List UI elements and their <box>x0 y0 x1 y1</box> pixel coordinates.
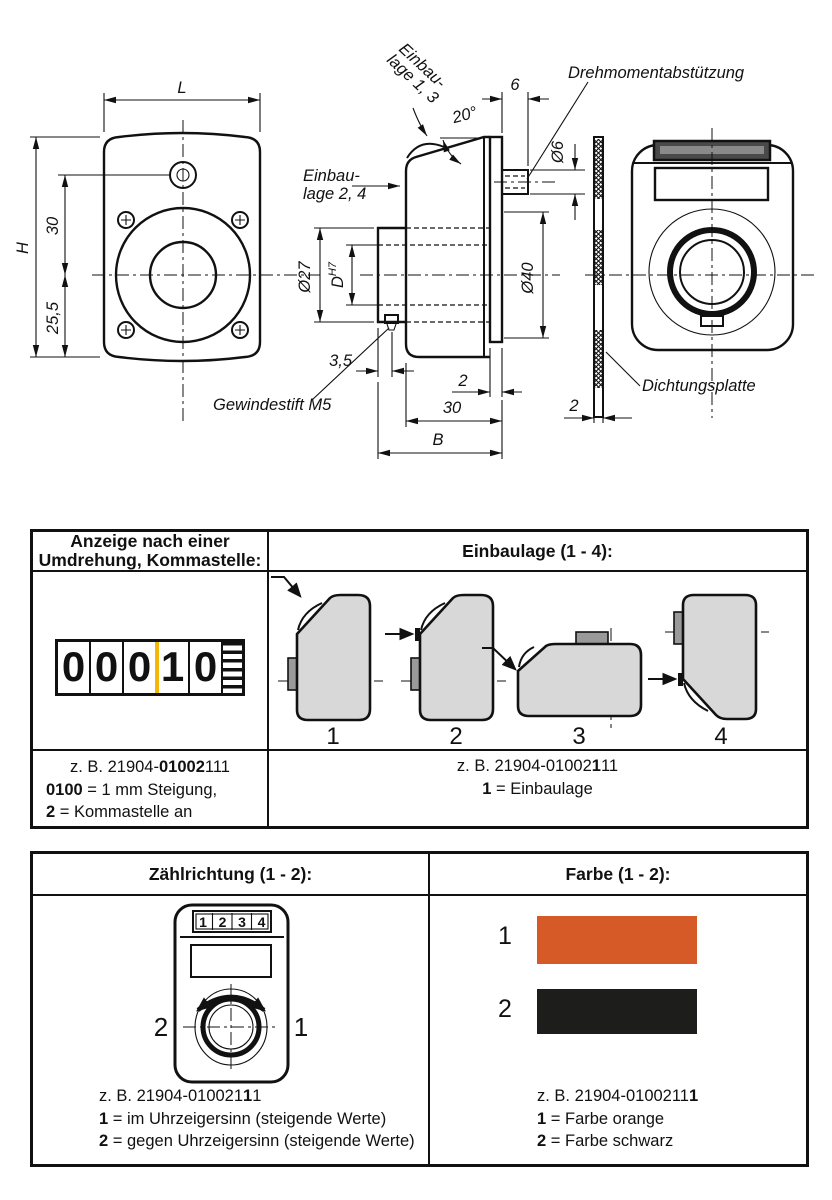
caption-line: 2 = Farbe schwarz <box>537 1130 698 1153</box>
counter-cell: 0 0 0 1 0 <box>33 572 269 751</box>
dim-30-depth: 30 <box>443 399 462 417</box>
einbaulage-number-2: 2 <box>449 723 462 748</box>
dim-6: 6 <box>510 76 520 94</box>
dim-30: 30 <box>44 216 62 235</box>
color-swatch-schwarz <box>537 989 697 1034</box>
technical-drawing: L H 30 25,5 Einbau- lage 1, 3 Einbau- <box>0 0 832 480</box>
dim-dia27: Ø27 <box>296 261 314 294</box>
counter-display: 0 0 0 1 0 <box>55 639 245 696</box>
caption-line: 1 = Farbe orange <box>537 1108 698 1131</box>
torque-support-label: Drehmomentabstützung <box>568 64 745 82</box>
dim-25-5: 25,5 <box>44 301 62 335</box>
counter-digit: 0 <box>190 642 223 693</box>
color-swatch-orange <box>537 916 697 964</box>
einbaulage-caption: z. B. 21904-01002111 1 = Einbaulage <box>269 751 806 826</box>
counter-digit: 0 <box>91 642 124 693</box>
direction-device: 1 2 3 4 2 1 <box>33 896 429 1084</box>
device-digit: 1 <box>199 914 207 930</box>
table-anzeige-einbaulage: Anzeige nach einer Umdrehung, Kommastell… <box>30 529 809 829</box>
table-zaehlrichtung-farbe: Zählrichtung (1 - 2): Farbe (1 - 2): 1 2… <box>30 851 809 1167</box>
header-einbaulage: Einbaulage (1 - 4): <box>269 532 806 572</box>
comma-position-marker <box>155 642 159 693</box>
catalog-page: { "drawing": { "front": { "dim_width": "… <box>0 0 832 1200</box>
side-view: Einbau- lage 1, 3 Einbau- lage 2, 4 20° … <box>213 40 745 459</box>
dim-3-5: 3,5 <box>329 352 353 370</box>
header-anzeige-line1: Anzeige nach einer <box>39 532 262 551</box>
header-farbe: Farbe (1 - 2): <box>430 854 806 896</box>
einbaulage-number-3: 3 <box>572 723 585 748</box>
counter-digit: 0 <box>58 642 91 693</box>
dim-B: B <box>432 431 443 449</box>
dim-2-seal: 2 <box>568 397 578 415</box>
counter-digit: 0 <box>124 642 157 693</box>
direction-label-cw: 1 <box>294 1012 308 1042</box>
farbe-cell: 1 2 z. B. 21904-01002111 1 = Farbe orang… <box>430 896 806 1164</box>
counter-wheel-stripes <box>223 642 242 693</box>
caption-line: z. B. 21904-01002111 <box>70 756 267 779</box>
einbaulage-number-4: 4 <box>714 723 727 748</box>
set-screw-label: Gewindestift M5 <box>213 396 332 414</box>
caption-line: 0100 = 1 mm Steigung, <box>46 779 267 802</box>
farbe-caption: z. B. 21904-01002111 1 = Farbe orange 2 … <box>537 1085 698 1153</box>
header-zaehlrichtung: Zählrichtung (1 - 2): <box>33 854 430 896</box>
swatch-label-orange: 1 <box>490 922 520 951</box>
seal-plate-label: Dichtungsplatte <box>642 377 756 395</box>
zaehlrichtung-caption: z. B. 21904-01002111 1 = im Uhrzeigersin… <box>99 1085 415 1153</box>
einbaulage-2: 2 <box>385 595 506 748</box>
anzeige-caption: z. B. 21904-01002111 0100 = 1 mm Steigun… <box>33 751 269 826</box>
einbaulage-4: 4 <box>648 595 769 748</box>
einbaulage-diagrams-cell: 1 2 3 <box>269 572 806 751</box>
caption-line: z. B. 21904-01002111 <box>269 755 806 778</box>
caption-line: z. B. 21904-01002111 <box>537 1085 698 1108</box>
dim-dia40: Ø40 <box>519 262 537 295</box>
dim-D-H7: DH7 <box>327 261 347 288</box>
caption-line: 1 = Einbaulage <box>269 778 806 801</box>
header-anzeige-line2: Umdrehung, Kommastelle: <box>39 551 262 570</box>
dim-dia6: Ø6 <box>549 140 567 164</box>
einbaulage-1: 1 <box>271 577 383 748</box>
direction-label-ccw: 2 <box>154 1012 168 1042</box>
einbaulage-diagrams: 1 2 3 <box>269 572 806 748</box>
caption-line: 2. Stelle von rechts <box>73 824 267 827</box>
dim-L: L <box>177 79 186 97</box>
dim-H: H <box>14 242 32 254</box>
einbaulage-24-label-l1: Einbau- <box>303 167 360 185</box>
einbaulage-number-1: 1 <box>326 723 339 748</box>
header-anzeige: Anzeige nach einer Umdrehung, Kommastell… <box>33 532 269 572</box>
dim-20deg: 20° <box>449 103 479 127</box>
einbaulage-24-label-l2: lage 2, 4 <box>303 185 366 203</box>
caption-line: 2 = gegen Uhrzeigersinn (steigende Werte… <box>99 1130 415 1153</box>
device-digit: 4 <box>258 914 266 930</box>
device-digit: 2 <box>219 914 227 930</box>
device-digit: 3 <box>238 914 246 930</box>
front-view: L H 30 25,5 <box>14 79 320 424</box>
caption-line: 1 = im Uhrzeigersinn (steigende Werte) <box>99 1108 415 1131</box>
counter-digit: 1 <box>157 642 190 693</box>
dim-2-flange: 2 <box>457 372 467 390</box>
caption-line: 2 = Kommastelle an <box>46 801 267 824</box>
swatch-label-schwarz: 2 <box>490 995 520 1024</box>
caption-line: z. B. 21904-01002111 <box>99 1085 415 1108</box>
zaehlrichtung-cell: 1 2 3 4 2 1 z. B. 21904-01002111 1 = im … <box>33 896 430 1164</box>
rear-view <box>585 128 818 418</box>
einbaulage-3: 3 <box>482 628 641 748</box>
